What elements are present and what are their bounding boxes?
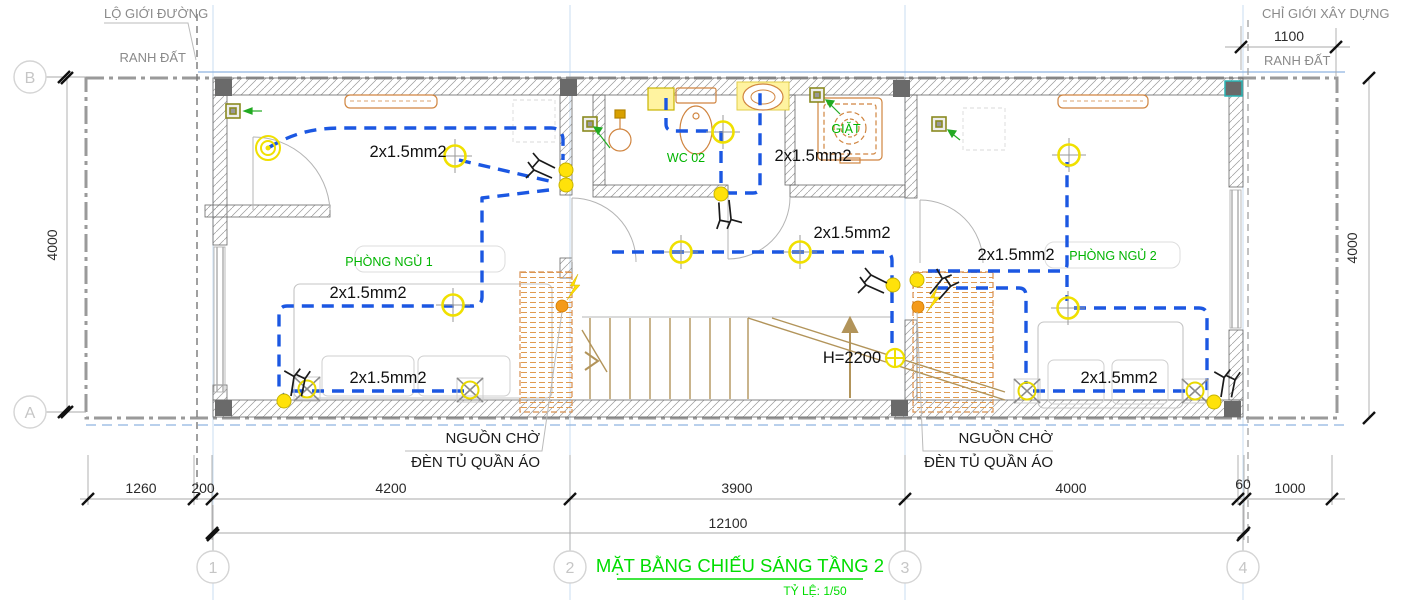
drawing-scale: TỶ LỆ: 1/50 xyxy=(783,583,847,598)
waiting-source-dot xyxy=(556,300,568,312)
wardrobe-1 xyxy=(520,272,572,412)
waiting-source-dot xyxy=(912,301,924,313)
wardrobe-notes: NGUỒN CHỜ ĐÈN TỦ QUẦN ÁO NGUỒN CHỜ ĐÈN T… xyxy=(411,429,1053,471)
wardrobe-note-2-line1: NGUỒN CHỜ xyxy=(958,429,1053,447)
wall-light-icon xyxy=(457,378,483,402)
stair-headroom-label: H=2200 xyxy=(823,349,881,367)
wire-label: 2x1.5mm2 xyxy=(813,224,890,242)
room-label-bedroom2: PHÒNG NGỦ 2 xyxy=(1069,248,1157,263)
construction-boundary-label: CHỈ GIỚI XÂY DỰNG xyxy=(1262,6,1389,21)
dim-bottom-1260: 1260 xyxy=(125,480,156,496)
room-label-laundry: GIẶT xyxy=(831,121,861,136)
dim-bottom-3900: 3900 xyxy=(721,480,752,496)
dim-overall-12100: 12100 xyxy=(709,515,748,531)
wire-labels: 2x1.5mm2 2x1.5mm2 2x1.5mm2 2x1.5mm2 2x1.… xyxy=(329,143,1157,387)
basin xyxy=(737,82,789,110)
grid-bubble-2: 2 xyxy=(566,560,575,577)
dim-left-4000: 4000 xyxy=(44,229,60,260)
wardrobe-note-1-line2: ĐÈN TỦ QUẦN ÁO xyxy=(411,453,540,471)
dim-right-4000: 4000 xyxy=(1344,232,1360,263)
wire-label: 2x1.5mm2 xyxy=(329,284,406,302)
wire-label: 2x1.5mm2 xyxy=(349,369,426,387)
dim-bottom-4200: 4200 xyxy=(375,480,406,496)
room-label-wc: WC 02 xyxy=(667,151,705,165)
switches xyxy=(284,153,1246,400)
wire-label: 2x1.5mm2 xyxy=(369,143,446,161)
drawing-title-block: MẶT BẰNG CHIẾU SÁNG TẦNG 2 TỶ LỆ: 1/50 xyxy=(596,555,884,598)
wall-light-icon xyxy=(1014,379,1040,403)
dimensions: 1260 200 4200 3900 4000 60 1000 12100 11… xyxy=(44,26,1375,551)
dimension-ticks xyxy=(58,41,1375,541)
ceiling-light-icon xyxy=(664,235,698,269)
toilet xyxy=(676,88,716,154)
ac-unit-2 xyxy=(1058,95,1148,108)
land-boundary-label-left: RANH ĐẤT xyxy=(120,50,187,65)
dim-bottom-4000: 4000 xyxy=(1055,480,1086,496)
spiral-light-icon xyxy=(256,136,280,160)
ac-unit-1 xyxy=(345,95,437,108)
lighting-plan-svg: 1260 200 4200 3900 4000 60 1000 12100 11… xyxy=(0,0,1403,610)
lavabo xyxy=(648,88,674,110)
walls xyxy=(205,78,1243,417)
grid-bubble-B: B xyxy=(25,70,36,87)
waiting-sources xyxy=(556,300,924,313)
wire-label: 2x1.5mm2 xyxy=(1080,369,1157,387)
wire-label: 2x1.5mm2 xyxy=(774,147,851,165)
wardrobe-note-1-line1: NGUỒN CHỜ xyxy=(445,429,540,447)
wall-light-icon xyxy=(1182,379,1208,403)
wall-light-icon xyxy=(294,377,320,401)
grid-bubble-3: 3 xyxy=(901,560,910,577)
floor-plan-canvas: 1260 200 4200 3900 4000 60 1000 12100 11… xyxy=(0,0,1403,610)
road-boundary-label: LỘ GIỚI ĐƯỜNG xyxy=(104,6,208,21)
ceiling-light-icon xyxy=(436,288,470,322)
grid-bubble-A: A xyxy=(25,405,36,422)
wardrobe-2 xyxy=(913,272,993,412)
wc-sink xyxy=(609,110,631,151)
land-boundary-label-right: RANH ĐẤT xyxy=(1264,53,1331,68)
grid-bubble-4: 4 xyxy=(1239,560,1248,577)
ceiling-light-icon xyxy=(783,235,817,269)
wire-label: 2x1.5mm2 xyxy=(977,246,1054,264)
bed-2 xyxy=(1038,322,1183,408)
drawing-title: MẶT BẰNG CHIẾU SÁNG TẦNG 2 xyxy=(596,555,884,576)
switch-icon xyxy=(526,153,555,178)
stair-light-icon xyxy=(886,349,904,367)
annotation-texts: LỘ GIỚI ĐƯỜNG CHỈ GIỚI XÂY DỰNG RANH ĐẤT… xyxy=(104,6,1389,68)
dim-top-1100: 1100 xyxy=(1274,28,1304,44)
room-label-bedroom1: PHÒNG NGỦ 1 xyxy=(345,254,433,269)
switch-icon xyxy=(858,268,887,293)
dim-bottom-200: 200 xyxy=(191,480,215,496)
wardrobe-note-2-line2: ĐÈN TỦ QUẦN ÁO xyxy=(924,453,1053,471)
ceiling-light-icon xyxy=(1051,291,1085,325)
switch-icon xyxy=(706,197,742,235)
ceiling-light-icon xyxy=(1052,138,1086,172)
grid-bubble-1: 1 xyxy=(209,560,218,577)
dim-bottom-60: 60 xyxy=(1235,476,1251,492)
dim-bottom-1000: 1000 xyxy=(1274,480,1305,496)
doors xyxy=(253,137,983,263)
